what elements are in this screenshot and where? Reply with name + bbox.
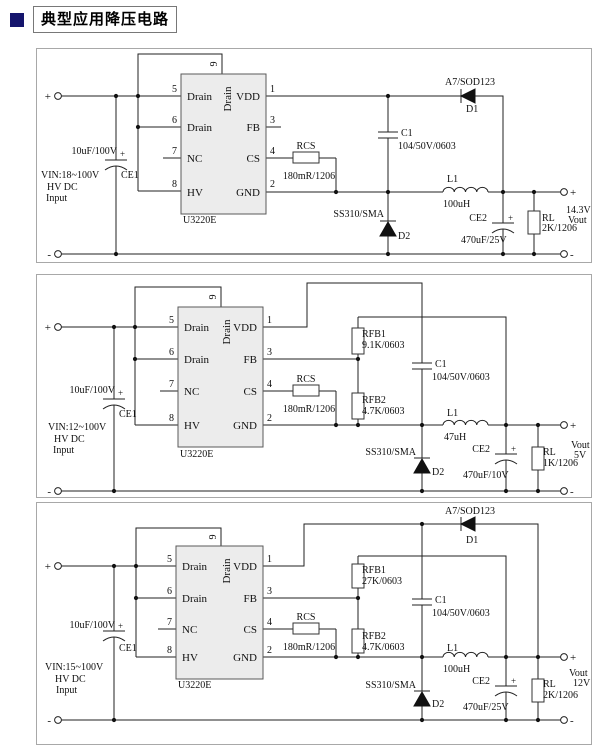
output-plus-sign: + — [570, 187, 576, 199]
ce2-ref: CE2 — [472, 676, 490, 687]
vout-line-2: 12V — [573, 678, 591, 689]
pin5-label: Drain — [182, 561, 208, 573]
d2-diode-symbol — [414, 458, 430, 473]
pin1-number: 1 — [270, 84, 275, 95]
pin9-label: Drain — [222, 86, 234, 112]
vin-line-1: VIN:18~100V — [41, 170, 100, 181]
ic-part-number: U3220E — [183, 215, 216, 226]
pin6-number: 6 — [167, 586, 172, 597]
c1-capacitor-symbol — [412, 363, 432, 369]
section-title-bar: 典型应用降压电路 — [10, 6, 177, 33]
ce1-ref: CE1 — [119, 643, 137, 654]
output-minus-terminal — [561, 251, 568, 258]
pin5-label: Drain — [187, 91, 213, 103]
pin8-number: 8 — [169, 413, 174, 424]
pin4-number: 4 — [267, 617, 272, 628]
rl-ref: RL — [543, 447, 556, 458]
circuit-1-schematic: + - + - 10uF/100V + CE1 VIN:18~100V HV D… — [37, 49, 591, 262]
rfb1-ref: RFB1 — [362, 329, 386, 340]
l1-value: 100uH — [443, 199, 470, 210]
pin4-label: CS — [244, 624, 257, 636]
c1-capacitor-symbol — [378, 132, 398, 138]
pin3-number: 3 — [270, 115, 275, 126]
pin2-number: 2 — [267, 413, 272, 424]
input-minus-terminal — [55, 488, 62, 495]
d2-ref: D2 — [398, 231, 410, 242]
vout-line-2: 5V — [574, 450, 587, 461]
ic-part-number: U3220E — [178, 680, 211, 691]
pin3-label: FB — [244, 354, 257, 366]
pin5-number: 5 — [169, 315, 174, 326]
vin-line-3: Input — [53, 445, 74, 456]
ce1-ref: CE1 — [119, 409, 137, 420]
ic-part-number: U3220E — [180, 449, 213, 460]
pin3-number: 3 — [267, 586, 272, 597]
output-minus-sign: - — [570, 249, 574, 261]
d1-diode-symbol — [461, 89, 475, 103]
l1-inductor-symbol — [443, 187, 488, 192]
circuit-3-box: + - + - 10uF/100V + CE1 VIN:15~100V HV D… — [36, 502, 592, 745]
pin1-label: VDD — [233, 322, 257, 334]
input-minus-sign: - — [47, 249, 51, 261]
output-plus-sign: + — [570, 652, 576, 664]
ce2-value: 470uF/25V — [463, 702, 509, 713]
pin1-number: 1 — [267, 554, 272, 565]
pin7-number: 7 — [167, 617, 172, 628]
circuit-3-schematic: + - + - 10uF/100V + CE1 VIN:15~100V HV D… — [37, 503, 591, 744]
vin-line-2: HV DC — [55, 674, 86, 685]
pin1-number: 1 — [267, 315, 272, 326]
ce2-polarity: + — [508, 213, 513, 223]
datasheet-page: 典型应用降压电路 — [0, 0, 607, 748]
ce1-polarity: + — [120, 149, 125, 159]
circuit-2-schematic: + - + - 10uF/100V + CE1 VIN:12~100V HV D… — [37, 275, 591, 497]
output-minus-terminal — [561, 717, 568, 724]
output-plus-terminal — [561, 654, 568, 661]
pin1-label: VDD — [233, 561, 257, 573]
d1-ref: D1 — [466, 535, 478, 546]
d2-ref: D2 — [432, 699, 444, 710]
input-plus-sign: + — [45, 322, 51, 334]
rfb2-value: 4.7K/0603 — [362, 642, 405, 653]
pin7-label: NC — [184, 386, 199, 398]
rcs-resistor-symbol — [293, 152, 319, 163]
pin1-label: VDD — [236, 91, 260, 103]
input-plus-sign: + — [45, 91, 51, 103]
ce2-ref: CE2 — [469, 213, 487, 224]
rfb1-value: 27K/0603 — [362, 576, 402, 587]
pin5-number: 5 — [172, 84, 177, 95]
pin9-number: 9 — [208, 535, 219, 540]
d2-part: SS310/SMA — [333, 209, 384, 220]
pin6-label: Drain — [184, 354, 210, 366]
pin9-number: 9 — [208, 295, 219, 300]
rl-value: 2K/1206 — [543, 690, 578, 701]
input-minus-sign: - — [47, 715, 51, 727]
pin6-number: 6 — [169, 347, 174, 358]
input-minus-sign: - — [47, 486, 51, 497]
pin9-label: Drain — [221, 319, 233, 345]
ce1-value: 10uF/100V — [69, 385, 115, 396]
circuit-1-box: + - + - 10uF/100V + CE1 VIN:18~100V HV D… — [36, 48, 592, 263]
vin-line-2: HV DC — [54, 434, 85, 445]
d1-ref: D1 — [466, 104, 478, 115]
input-plus-terminal — [55, 324, 62, 331]
input-minus-terminal — [55, 717, 62, 724]
rcs-value: 180mR/1206 — [283, 642, 335, 653]
d2-ref: D2 — [432, 467, 444, 478]
rcs-ref: RCS — [297, 141, 316, 152]
pin3-number: 3 — [267, 347, 272, 358]
vin-line-3: Input — [56, 685, 77, 696]
c1-ref: C1 — [401, 128, 413, 139]
l1-ref: L1 — [447, 643, 458, 654]
pin8-label: HV — [187, 187, 203, 199]
pin8-label: HV — [182, 652, 198, 664]
rl-resistor-symbol — [528, 211, 540, 234]
output-plus-sign: + — [570, 420, 576, 432]
circuit-2-box: + - + - 10uF/100V + CE1 VIN:12~100V HV D… — [36, 274, 592, 498]
input-plus-sign: + — [45, 561, 51, 573]
ce2-value: 470uF/25V — [461, 235, 507, 246]
l1-ref: L1 — [447, 174, 458, 185]
pin3-label: FB — [247, 122, 260, 134]
pin6-label: Drain — [182, 593, 208, 605]
ce1-value: 10uF/100V — [71, 146, 117, 157]
c1-capacitor-symbol — [412, 599, 432, 605]
d1-part: A7/SOD123 — [445, 77, 495, 88]
vin-line-1: VIN:15~100V — [45, 662, 104, 673]
ce1-ref: CE1 — [121, 170, 139, 181]
pin4-label: CS — [247, 153, 260, 165]
pin2-label: GND — [236, 187, 260, 199]
output-plus-terminal — [561, 422, 568, 429]
pin9-number: 9 — [209, 62, 220, 67]
pin5-number: 5 — [167, 554, 172, 565]
c1-value: 104/50V/0603 — [432, 608, 490, 619]
ce2-value: 470uF/10V — [463, 470, 509, 481]
rcs-resistor-symbol — [293, 623, 319, 634]
pin7-label: NC — [182, 624, 197, 636]
rcs-resistor-symbol — [293, 385, 319, 396]
pin8-number: 8 — [167, 645, 172, 656]
pin7-number: 7 — [172, 146, 177, 157]
rfb2-ref: RFB2 — [362, 631, 386, 642]
ce2-polarity: + — [511, 676, 516, 686]
pin2-number: 2 — [267, 645, 272, 656]
vin-line-1: VIN:12~100V — [48, 422, 107, 433]
vin-line-2: HV DC — [47, 182, 78, 193]
ce1-polarity: + — [118, 388, 123, 398]
pin2-number: 2 — [270, 179, 275, 190]
rfb1-ref: RFB1 — [362, 565, 386, 576]
output-minus-terminal — [561, 488, 568, 495]
pin7-number: 7 — [169, 379, 174, 390]
pin5-label: Drain — [184, 322, 210, 334]
rcs-ref: RCS — [297, 612, 316, 623]
page-title: 典型应用降压电路 — [33, 6, 177, 33]
d2-diode-symbol — [414, 691, 430, 706]
input-plus-terminal — [55, 93, 62, 100]
output-minus-sign: - — [570, 715, 574, 727]
l1-inductor-symbol — [443, 420, 488, 425]
c1-value: 104/50V/0603 — [398, 141, 456, 152]
pin6-label: Drain — [187, 122, 213, 134]
vout-line-2: Vout — [568, 215, 587, 226]
ce1-polarity: + — [118, 621, 123, 631]
d2-diode-symbol — [380, 221, 396, 236]
rcs-value: 180mR/1206 — [283, 404, 335, 415]
title-bullet-square — [10, 13, 24, 27]
pin2-label: GND — [233, 420, 257, 432]
c1-ref: C1 — [435, 595, 447, 606]
vin-line-3: Input — [46, 193, 67, 204]
c1-value: 104/50V/0603 — [432, 372, 490, 383]
pin3-label: FB — [244, 593, 257, 605]
d2-part: SS310/SMA — [365, 447, 416, 458]
pin8-number: 8 — [172, 179, 177, 190]
pin4-number: 4 — [267, 379, 272, 390]
rl-ref: RL — [543, 679, 556, 690]
l1-value: 47uH — [444, 432, 466, 443]
pin6-number: 6 — [172, 115, 177, 126]
rcs-ref: RCS — [297, 374, 316, 385]
d2-part: SS310/SMA — [365, 680, 416, 691]
input-minus-terminal — [55, 251, 62, 258]
pin8-label: HV — [184, 420, 200, 432]
rcs-value: 180mR/1206 — [283, 171, 335, 182]
output-minus-sign: - — [570, 486, 574, 497]
d1-part: A7/SOD123 — [445, 506, 495, 517]
rfb2-value: 4.7K/0603 — [362, 406, 405, 417]
l1-ref: L1 — [447, 408, 458, 419]
ce1-value: 10uF/100V — [69, 620, 115, 631]
input-plus-terminal — [55, 563, 62, 570]
rfb2-ref: RFB2 — [362, 395, 386, 406]
pin2-label: GND — [233, 652, 257, 664]
rl-value: 1K/1206 — [543, 458, 578, 469]
pin7-label: NC — [187, 153, 202, 165]
ce2-ref: CE2 — [472, 444, 490, 455]
output-plus-terminal — [561, 189, 568, 196]
ce2-polarity: + — [511, 444, 516, 454]
c1-ref: C1 — [435, 359, 447, 370]
d1-diode-symbol — [461, 517, 475, 531]
pin4-number: 4 — [270, 146, 275, 157]
l1-value: 100uH — [443, 664, 470, 675]
rfb1-value: 9.1K/0603 — [362, 340, 405, 351]
pin9-label: Drain — [221, 558, 233, 584]
pin4-label: CS — [244, 386, 257, 398]
